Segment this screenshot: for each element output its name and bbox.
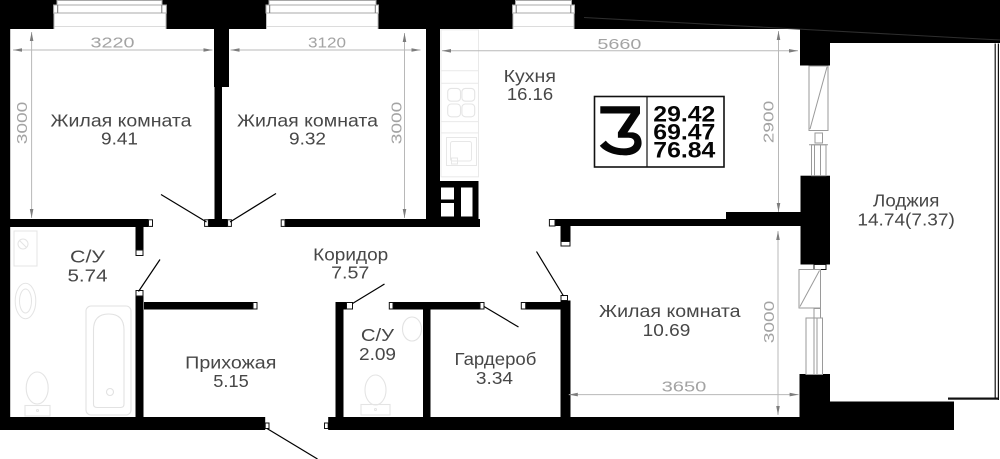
svg-text:16.16: 16.16 [507,84,553,104]
svg-text:7.57: 7.57 [331,263,369,283]
svg-text:Жилая комната: Жилая комната [237,111,378,131]
svg-text:5660: 5660 [597,37,641,53]
svg-text:3000: 3000 [762,301,778,344]
svg-text:Гардероб: Гардероб [455,349,537,369]
svg-text:2900: 2900 [762,101,778,144]
svg-text:Лоджия: Лоджия [873,191,939,211]
svg-text:9.41: 9.41 [101,129,138,149]
svg-text:Кухня: Кухня [504,66,556,86]
svg-text:9.32: 9.32 [289,129,326,149]
svg-text:3650: 3650 [662,380,707,396]
svg-text:Коридор: Коридор [313,244,388,264]
svg-text:14.74(7.37): 14.74(7.37) [857,209,955,229]
svg-text:Жилая комната: Жилая комната [51,111,192,131]
svg-text:3220: 3220 [91,36,135,52]
svg-text:10.69: 10.69 [643,320,691,340]
svg-text:С/У: С/У [70,247,106,267]
svg-text:3.34: 3.34 [476,368,513,388]
svg-text:76.84: 76.84 [653,137,716,162]
svg-text:3000: 3000 [390,102,406,145]
svg-text:С/У: С/У [361,325,395,345]
svg-text:Жилая комната: Жилая комната [599,301,741,321]
svg-text:2.09: 2.09 [359,344,396,364]
svg-text:Прихожая: Прихожая [185,353,276,373]
svg-text:3120: 3120 [308,36,346,52]
svg-text:5.15: 5.15 [213,371,248,391]
svg-text:5.74: 5.74 [68,266,108,286]
svg-text:3000: 3000 [15,102,31,145]
